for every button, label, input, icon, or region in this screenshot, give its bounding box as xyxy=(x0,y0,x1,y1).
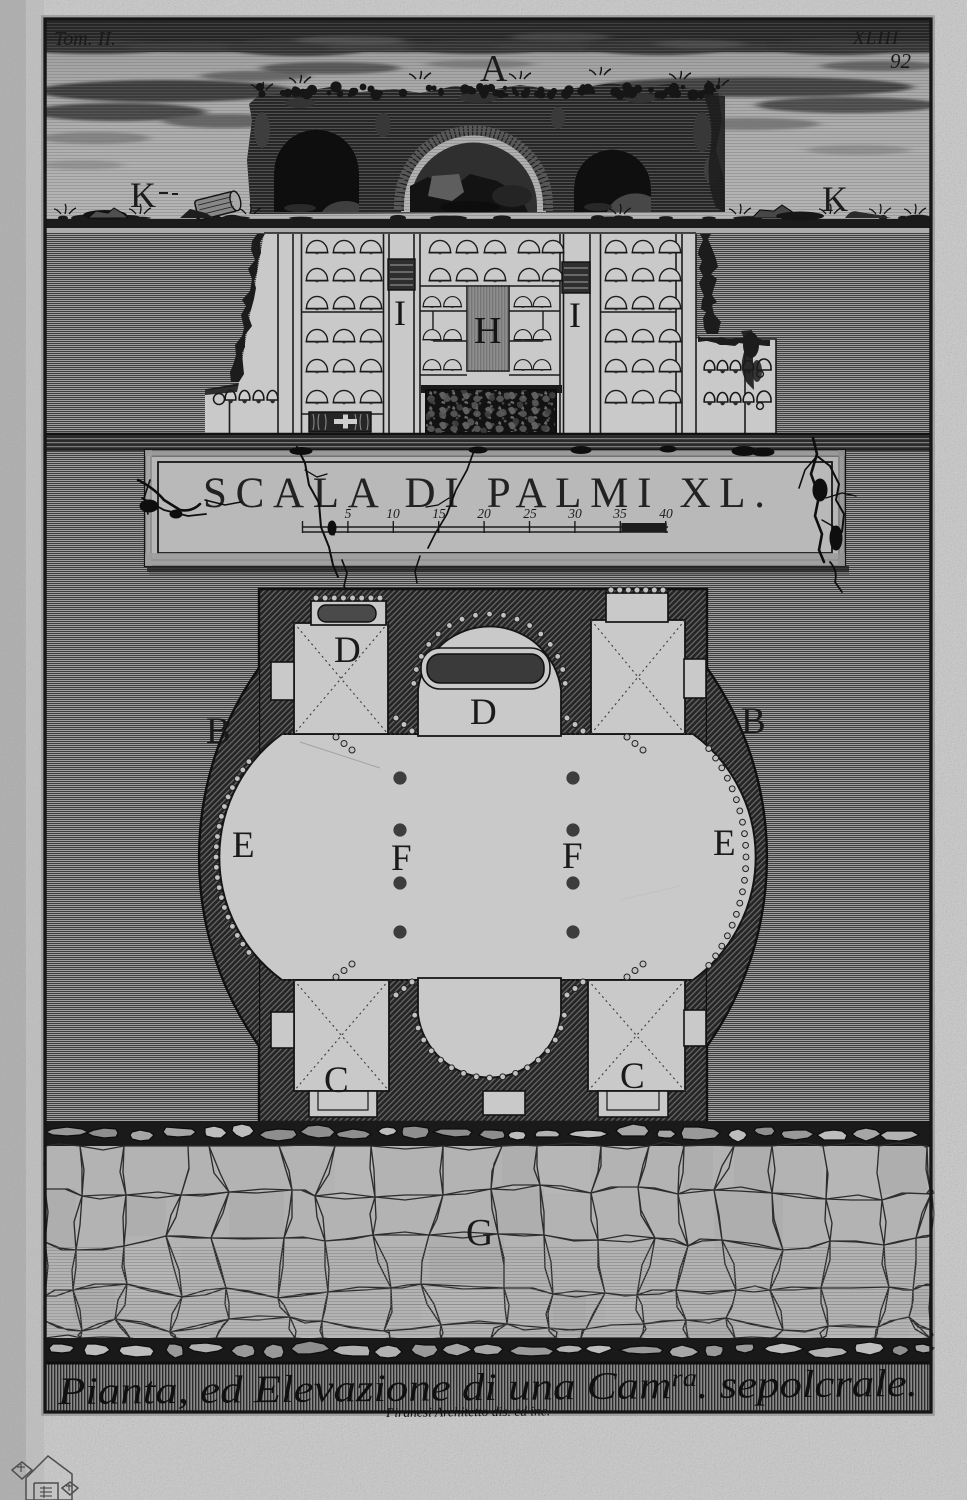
svg-text:35: 35 xyxy=(612,506,627,521)
svg-text:F: F xyxy=(562,836,583,877)
svg-text:B: B xyxy=(741,701,766,742)
svg-text:40: 40 xyxy=(659,506,673,521)
svg-text:25: 25 xyxy=(523,506,537,521)
svg-text:Piranesi Architetto dis. ed in: Piranesi Architetto dis. ed inc. xyxy=(385,1403,550,1420)
svg-text:K: K xyxy=(130,175,156,215)
svg-text:I: I xyxy=(569,295,581,335)
svg-text:10: 10 xyxy=(386,506,400,521)
svg-text:B: B xyxy=(206,711,231,752)
svg-text:C: C xyxy=(620,1056,645,1097)
svg-text:G: G xyxy=(466,1212,493,1254)
svg-text:E: E xyxy=(713,823,736,864)
svg-text:5: 5 xyxy=(345,506,352,521)
svg-text:XLIII: XLIII xyxy=(852,28,900,49)
svg-text:30: 30 xyxy=(567,506,582,521)
svg-text:K: K xyxy=(822,179,848,219)
svg-text:92: 92 xyxy=(890,49,912,73)
svg-text:Tom. II.: Tom. II. xyxy=(54,28,116,50)
svg-text:A: A xyxy=(480,48,508,90)
svg-text:E: E xyxy=(232,825,255,866)
svg-text:I: I xyxy=(394,293,406,333)
svg-text:D: D xyxy=(334,630,361,671)
svg-text:20: 20 xyxy=(477,506,491,521)
svg-text:H: H xyxy=(474,310,501,352)
svg-text:C: C xyxy=(324,1060,349,1101)
svg-text:D: D xyxy=(470,692,497,733)
svg-text:F: F xyxy=(391,838,412,879)
